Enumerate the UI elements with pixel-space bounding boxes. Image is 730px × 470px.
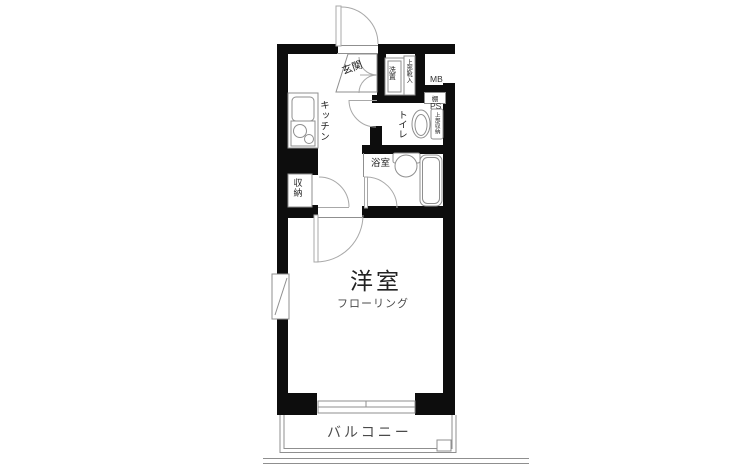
bathtub <box>420 155 442 206</box>
bathroom-label: 浴室 <box>371 159 390 169</box>
entrance-door-arc <box>341 7 378 44</box>
washer-label: 洗置 <box>388 66 395 80</box>
floorplan-canvas: 棚 玄関 MB PS 洗置 上部靴入 トイレ 上部収納 浴室 キッチン 収納 洋… <box>0 0 730 470</box>
bath-door-arc <box>366 177 397 208</box>
floorplan-lines <box>0 0 730 470</box>
room-door-leaf <box>314 215 318 262</box>
balcony-notch <box>437 440 451 451</box>
main-room-label: 洋室 <box>350 269 402 293</box>
ps-label: PS <box>430 102 443 111</box>
kitchen-label: キッチン <box>318 100 328 142</box>
mb-label: MB <box>430 75 443 84</box>
shoe-upper-label: 上部靴入 <box>405 59 411 83</box>
room-door-arc <box>316 215 363 262</box>
closet-label: 収納 <box>292 178 301 198</box>
toilet-upper-storage-label: 上部収納 <box>433 112 439 134</box>
closet-door-arc <box>319 177 349 207</box>
balcony-label: バルコニー <box>327 425 412 440</box>
entrance-door-leaf <box>336 6 341 46</box>
flooring-label: フローリング <box>337 299 409 311</box>
bath-door-leaf <box>365 177 368 208</box>
hall-door-arc-lower <box>359 75 377 93</box>
toilet-door-arc <box>349 100 376 127</box>
bath-basin <box>395 155 417 177</box>
toilet-label: トイレ <box>396 110 406 139</box>
